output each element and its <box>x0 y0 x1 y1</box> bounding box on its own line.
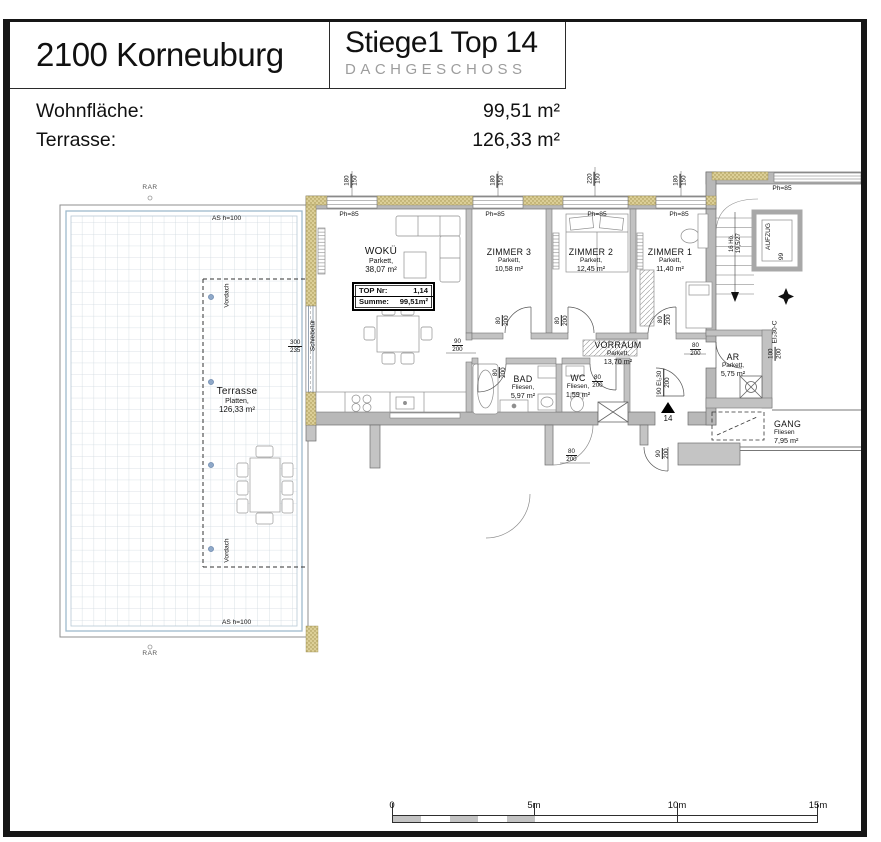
elevator-shaft <box>754 212 800 269</box>
summe-value: 99,51m² <box>400 297 428 307</box>
parapet-label: Ph=85 <box>772 185 791 192</box>
parapet-label: Ph=85 <box>339 211 358 218</box>
room-label-terrasse: Terrasse Platten, 126,33 m² <box>217 386 258 415</box>
parapet-label: Ph=85 <box>587 211 606 218</box>
top-nr-label: TOP Nr: <box>359 286 387 296</box>
window-dim: 180150 <box>490 173 505 187</box>
room-label-wc: WC Fliesen, 1,59 m² <box>566 373 590 399</box>
entry-door-dim: 90 EI₂30200 <box>656 369 671 397</box>
top-nr-value: 1,14 <box>413 286 428 296</box>
door-dim: 80200 <box>495 315 510 326</box>
door-dim: 80200 <box>554 315 569 326</box>
rar-label: RAR <box>142 650 157 657</box>
window-dim: 180150 <box>344 173 359 187</box>
terrasse-label: Terrasse: <box>36 129 116 152</box>
row-wohnflaeche: Wohnfläche: 99,51 m² <box>36 100 560 123</box>
stairs-label: 16 Hö. 19,5/27 <box>729 233 743 253</box>
summe-label: Summe: <box>359 297 389 307</box>
unit-title: Stiege1 Top 14 <box>345 27 565 59</box>
service-shaft-icon <box>598 402 628 422</box>
floorplan-drawing <box>0 0 881 842</box>
floorplan-page: 2100 Korneuburg Stiege1 Top 14 DACHGESCH… <box>0 0 881 842</box>
door-dim: 90200 <box>452 338 463 353</box>
scale-tick-5m: 5m <box>527 800 540 811</box>
parapet-label: Ph=85 <box>669 211 688 218</box>
scale-tick-0: 0 <box>389 800 394 811</box>
north-marker-icon <box>778 288 794 305</box>
attic-ladder-icon <box>712 412 764 440</box>
page-title: 2100 Korneuburg <box>10 36 284 74</box>
room-label-zimmer3: ZIMMER 3 Parkett, 10,58 m² <box>487 247 531 273</box>
door-dim: 80200 <box>690 342 701 357</box>
title-cell-unit: Stiege1 Top 14 DACHGESCHOSS <box>330 22 565 88</box>
scale-bar-segment <box>393 816 421 822</box>
sliding-door-label: Schiebetür <box>309 320 316 352</box>
washing-machine-icon <box>740 376 762 398</box>
scale-bar-segment <box>507 816 535 822</box>
terrace-railing-label: AS h=100 <box>212 215 241 222</box>
gang-door-dim: 100200 EI₂30-C <box>768 320 783 360</box>
window-dim: 220150 <box>587 171 602 185</box>
scale-tick-15m: 15m <box>809 800 827 811</box>
top-summary-box: TOP Nr: 1,14 Summe: 99,51m² <box>352 282 435 311</box>
rar-label: RAR <box>142 184 157 191</box>
room-label-zimmer1: ZIMMER 1 Parkett, 11,40 m² <box>648 247 692 273</box>
title-block: 2100 Korneuburg Stiege1 Top 14 DACHGESCH… <box>10 22 566 89</box>
canopy-label: Vordach <box>224 538 231 562</box>
terrace-deck <box>60 205 308 637</box>
title-cell-location: 2100 Korneuburg <box>10 22 330 88</box>
room-label-ar: AR Parkett, 5,75 m² <box>721 352 745 378</box>
room-label-wokue: WOKÜ Parkett, 38,07 m² <box>365 246 397 275</box>
door-dim: 80200 <box>592 374 603 389</box>
scale-bar <box>392 815 818 823</box>
elevator-note: 99 <box>778 253 785 260</box>
row-terrasse: Terrasse: 126,33 m² <box>36 129 560 152</box>
door-dim: 80200 <box>492 367 507 378</box>
room-label-bad: BAD Fliesen, 5,97 m² <box>511 374 535 400</box>
canopy-label: Vordach <box>224 283 231 307</box>
gang-door-spec: EI₂30-C <box>772 320 779 343</box>
window-dim: 180150 <box>673 173 688 187</box>
entrance-arrow-icon <box>661 402 675 413</box>
terrace-railing-label: AS h=100 <box>222 619 251 626</box>
sliding-door-dim: 300235 <box>288 339 302 354</box>
floor-subtitle: DACHGESCHOSS <box>345 61 565 78</box>
wohnflaeche-value: 99,51 m² <box>483 100 560 123</box>
room-label-zimmer2: ZIMMER 2 Parkett, 12,45 m² <box>569 247 613 273</box>
parapet-label: Ph=85 <box>485 211 504 218</box>
scale-tick-10m: 10m <box>668 800 686 811</box>
wohnflaeche-label: Wohnfläche: <box>36 100 144 123</box>
scale-bar-segment <box>450 816 478 822</box>
door-dim: 80200 <box>657 314 672 325</box>
door-dim: 90200 <box>655 448 670 459</box>
terrasse-value: 126,33 m² <box>472 129 560 152</box>
room-label-vorraum: VORRAUM Parkett, 13,70 m² <box>594 340 641 366</box>
entrance-number: 14 <box>664 414 673 423</box>
door-dim: 80200 <box>566 448 577 463</box>
elevator-label: AUFZUG <box>765 223 772 250</box>
room-label-gang: GANG Fliesen 7,95 m² <box>774 419 801 445</box>
